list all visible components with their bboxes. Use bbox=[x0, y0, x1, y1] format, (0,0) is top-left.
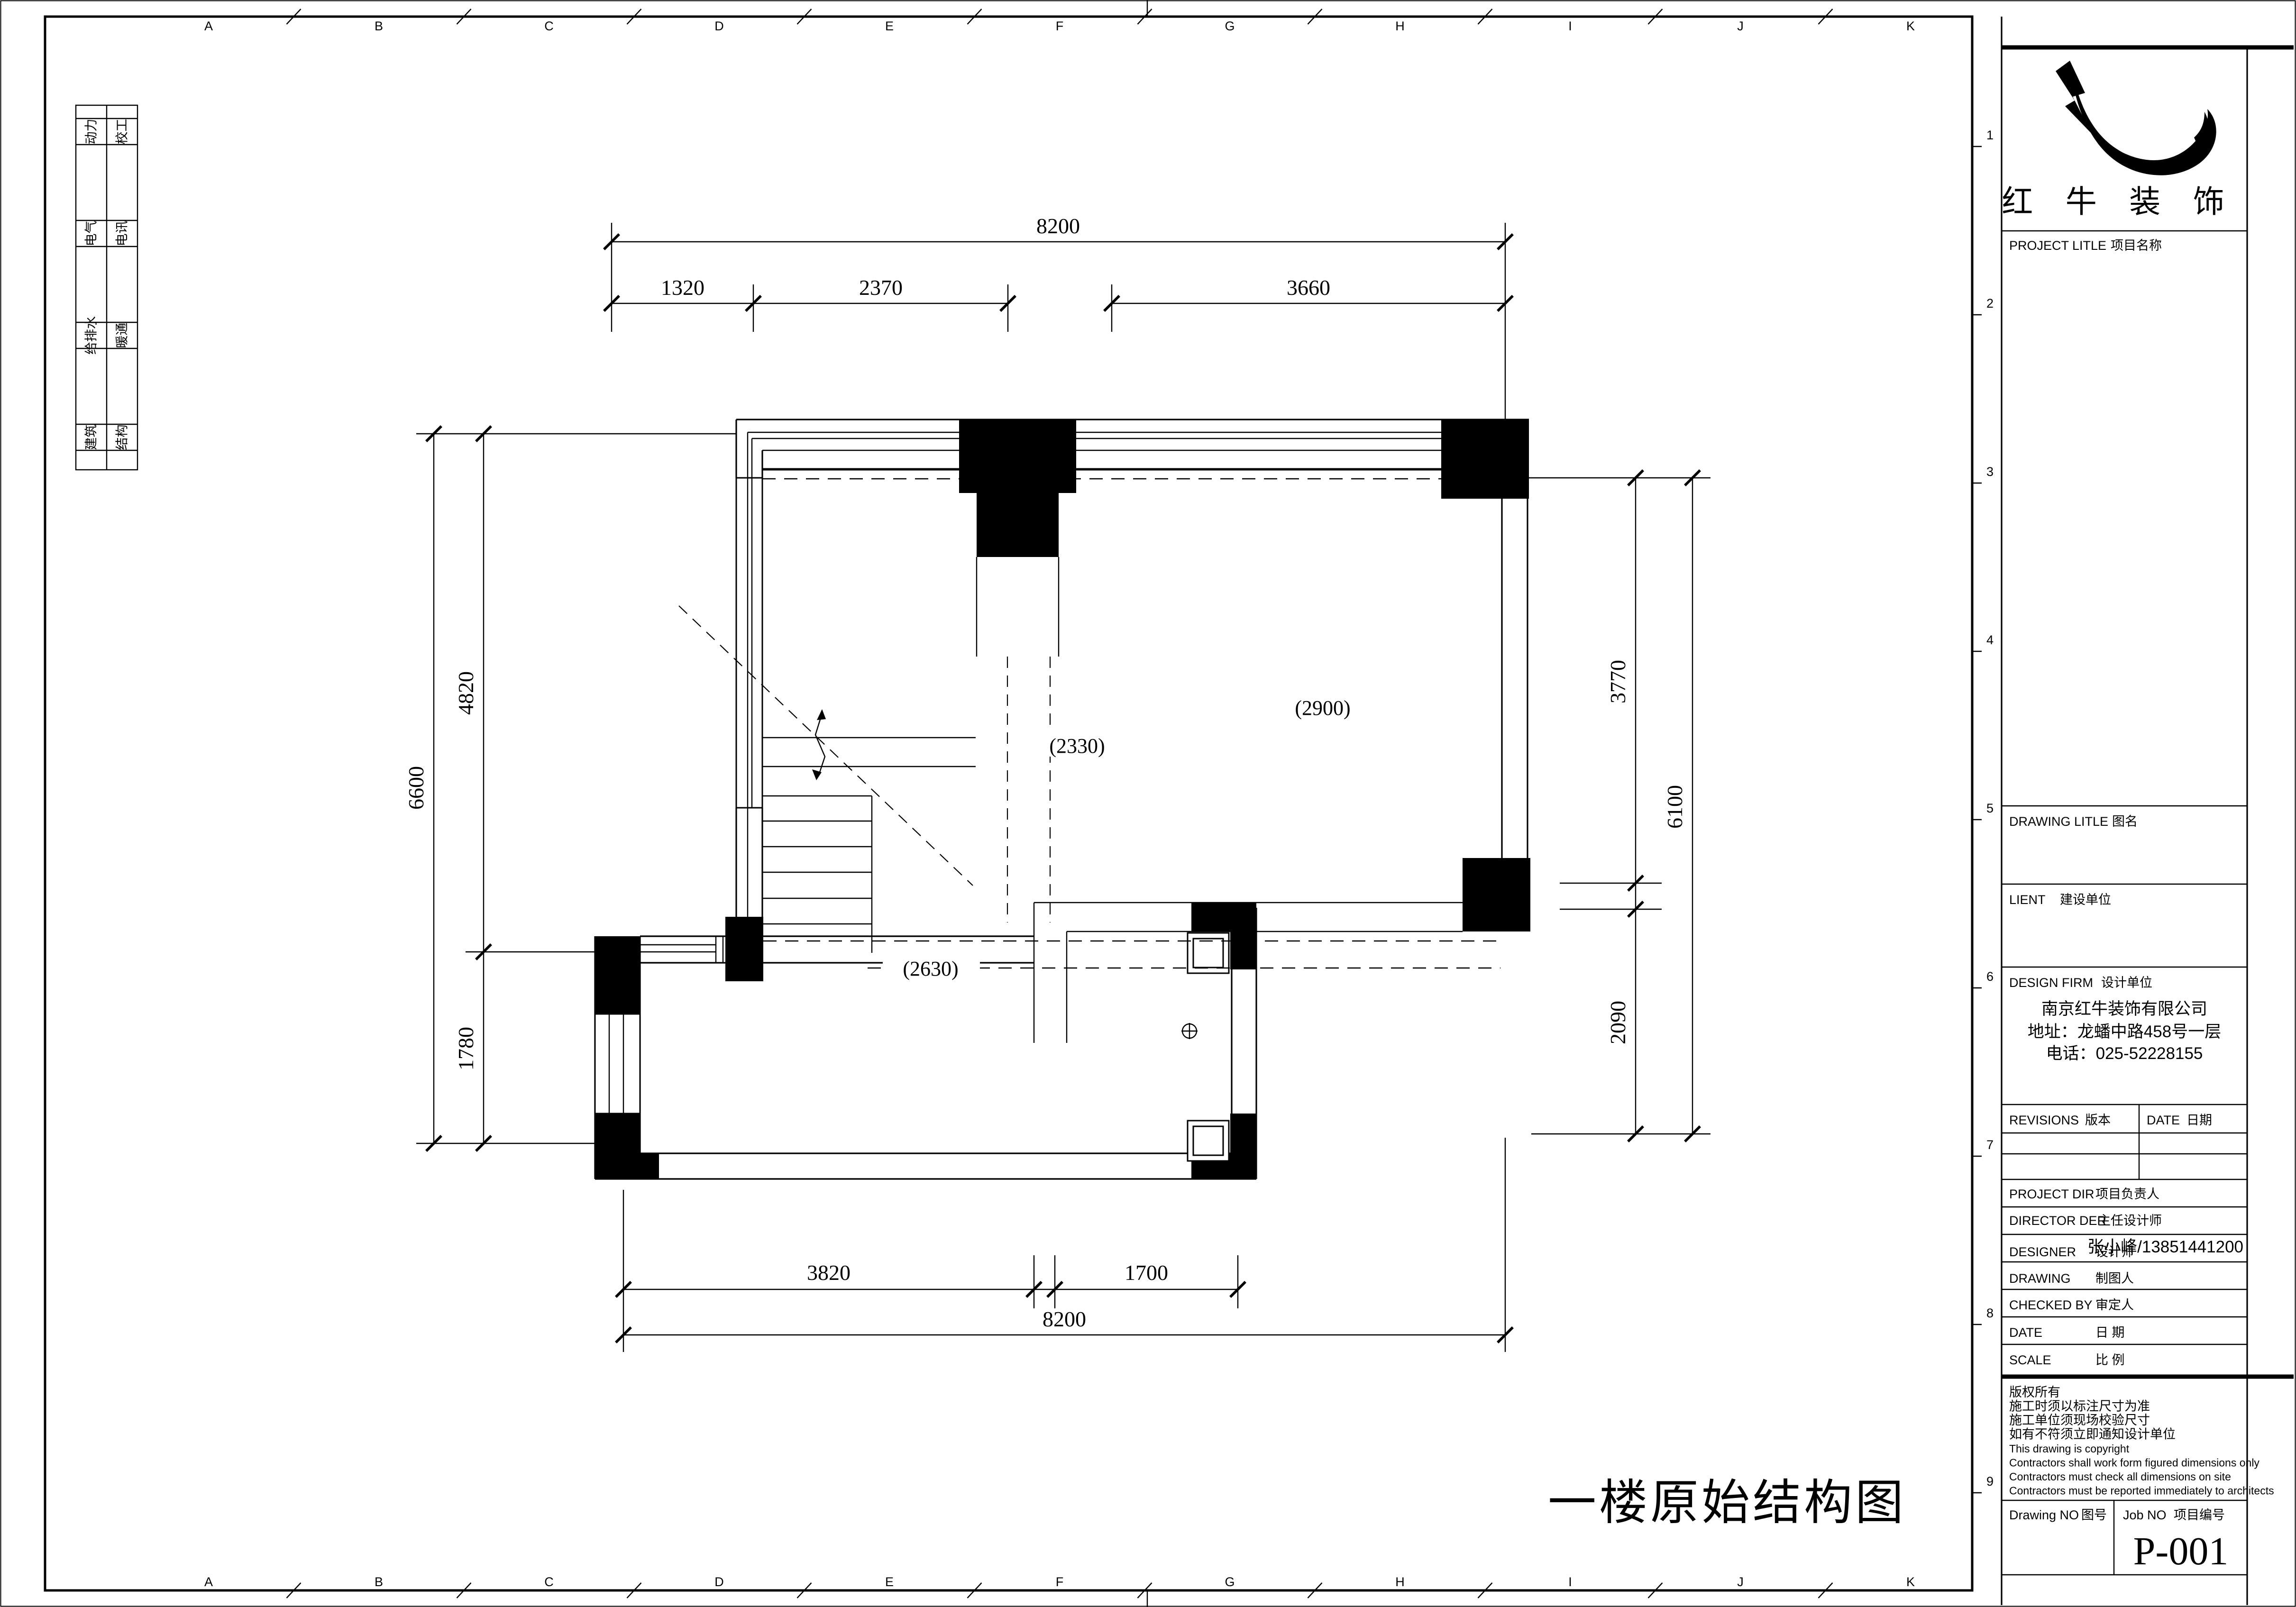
svg-text:审定人: 审定人 bbox=[2095, 1298, 2134, 1312]
discipline-label: 结构 bbox=[115, 425, 129, 450]
svg-text:设计师: 设计师 bbox=[2095, 1245, 2134, 1259]
grid-letter: B bbox=[375, 19, 383, 33]
grid-letter: G bbox=[1225, 1575, 1235, 1589]
window-symbol bbox=[736, 478, 762, 808]
grid-letter: F bbox=[1056, 1575, 1064, 1589]
grid-row-number: 4 bbox=[1986, 633, 1994, 647]
grid-row-number: 7 bbox=[1986, 1138, 1994, 1152]
dim-right-total: 6100 bbox=[1663, 785, 1687, 829]
revisions-label: REVISIONS bbox=[2009, 1113, 2079, 1127]
dim: 3820 bbox=[807, 1260, 851, 1285]
column bbox=[595, 1153, 659, 1179]
grid-letter: J bbox=[1737, 1575, 1744, 1589]
grid-row-number: 9 bbox=[1986, 1474, 1994, 1488]
client-label: LIENT bbox=[2009, 893, 2046, 907]
grid-letter: J bbox=[1737, 19, 1744, 33]
column bbox=[595, 936, 640, 1014]
discipline-label: 电气 bbox=[84, 221, 99, 247]
grid-letter: B bbox=[375, 1575, 383, 1589]
window-symbol bbox=[595, 1014, 640, 1114]
design-firm-label: DESIGN FIRM bbox=[2009, 976, 2093, 990]
copyright-line: Contractors shall work form figured dime… bbox=[2009, 1457, 2259, 1469]
grid-letter: G bbox=[1225, 19, 1235, 33]
dim-left-total: 6600 bbox=[404, 766, 428, 810]
grid-letter: H bbox=[1395, 19, 1405, 33]
drawing-title: 一楼原始结构图 bbox=[1548, 1477, 1906, 1530]
date-col-label: DATE bbox=[2147, 1113, 2180, 1127]
company-name: 红 牛 装 饰 bbox=[2002, 185, 2237, 219]
grid-letter: C bbox=[544, 19, 554, 33]
svg-text:图名: 图名 bbox=[2112, 814, 2138, 829]
column bbox=[725, 917, 763, 981]
copyright-line: 如有不符须立即通知设计单位 bbox=[2009, 1427, 2176, 1442]
copyright-line: Contractors must check all dimensions on… bbox=[2009, 1470, 2231, 1483]
room-label: (2630) bbox=[903, 957, 958, 980]
project-title-label: PROJECT LITLE bbox=[2009, 238, 2106, 253]
grid-row-number: 1 bbox=[1986, 128, 1994, 142]
copyright-line: 施工时须以标注尺寸为准 bbox=[2009, 1399, 2150, 1414]
drawing-no-label: Drawing NO bbox=[2009, 1508, 2079, 1522]
svg-text:主任设计师: 主任设计师 bbox=[2098, 1214, 2162, 1228]
column bbox=[959, 420, 1076, 493]
svg-text:制图人: 制图人 bbox=[2095, 1271, 2134, 1286]
grid-letter: C bbox=[544, 1575, 554, 1589]
designer-label: DESIGNER bbox=[2009, 1245, 2076, 1259]
job-no-value: P-001 bbox=[2133, 1529, 2229, 1573]
grid-letter: D bbox=[714, 1575, 724, 1589]
dim: 4820 bbox=[454, 671, 478, 715]
svg-text:图号: 图号 bbox=[2081, 1508, 2107, 1522]
dim: 3660 bbox=[1287, 275, 1330, 300]
firm-address: 地址：龙蟠中路458号一层 bbox=[2028, 1023, 2221, 1041]
dim: 2090 bbox=[1606, 1001, 1630, 1044]
column bbox=[1441, 420, 1529, 499]
grid-letter: A bbox=[204, 19, 213, 33]
grid-letter: E bbox=[885, 19, 894, 33]
discipline-label: 暖通 bbox=[115, 323, 129, 348]
column-stem bbox=[977, 493, 1059, 557]
column bbox=[1230, 908, 1256, 969]
dim-bottom-total: 8200 bbox=[1043, 1307, 1086, 1331]
director-label: DIRECTOR DER bbox=[2009, 1214, 2106, 1228]
grid-letter: A bbox=[204, 1575, 213, 1589]
drawing-title-label: DRAWING LITLE bbox=[2009, 814, 2108, 829]
svg-text:设计单位: 设计单位 bbox=[2101, 976, 2152, 990]
job-no-label: Job NO bbox=[2123, 1508, 2167, 1522]
discipline-label: 校工 bbox=[115, 119, 129, 145]
grid-row-number: 3 bbox=[1986, 465, 1994, 479]
architectural-drawing-sheet: 动力校工电气电讯给排水暖通建筑结构 AABBCCDDEEFFGGHHIIJJKK… bbox=[0, 0, 2296, 1607]
grid-letter: F bbox=[1056, 19, 1064, 33]
scale-row-label: SCALE bbox=[2009, 1353, 2051, 1367]
svg-text:项目名称: 项目名称 bbox=[2111, 238, 2162, 253]
copyright-line: Contractors must be reported immediately… bbox=[2009, 1485, 2274, 1497]
copyright-line: This drawing is copyright bbox=[2009, 1443, 2130, 1455]
grid-letter: I bbox=[1568, 19, 1572, 33]
discipline-label: 建筑 bbox=[84, 425, 99, 450]
date-row-label: DATE bbox=[2009, 1325, 2042, 1340]
column bbox=[1230, 1114, 1256, 1154]
grid-row-number: 2 bbox=[1986, 296, 1994, 310]
checked-by-label: CHECKED BY bbox=[2009, 1298, 2093, 1312]
dim: 1700 bbox=[1125, 1260, 1168, 1285]
dim: 2370 bbox=[859, 275, 903, 300]
dim: 1320 bbox=[661, 275, 704, 300]
discipline-label: 电讯 bbox=[115, 221, 129, 247]
svg-text:版本: 版本 bbox=[2085, 1113, 2111, 1127]
discipline-label: 给排水 bbox=[84, 316, 99, 355]
svg-text:日 期: 日 期 bbox=[2095, 1325, 2125, 1340]
svg-text:建设单位: 建设单位 bbox=[2060, 893, 2111, 907]
grid-letter: E bbox=[885, 1575, 894, 1589]
project-dir-label: PROJECT DIR bbox=[2009, 1187, 2095, 1201]
column bbox=[1463, 858, 1530, 931]
svg-text:比 例: 比 例 bbox=[2095, 1353, 2125, 1367]
grid-letter: H bbox=[1395, 1575, 1405, 1589]
grid-letter: K bbox=[1906, 1575, 1915, 1589]
copyright-line: 版权所有 bbox=[2009, 1385, 2060, 1399]
svg-text:日期: 日期 bbox=[2186, 1113, 2212, 1127]
drawing-by-label: DRAWING bbox=[2009, 1271, 2071, 1286]
grid-row-number: 8 bbox=[1986, 1306, 1994, 1320]
firm-phone: 电话：025-52228155 bbox=[2046, 1044, 2203, 1063]
discipline-label: 动力 bbox=[84, 119, 99, 145]
dim-top-total: 8200 bbox=[1036, 214, 1080, 238]
svg-text:项目编号: 项目编号 bbox=[2174, 1508, 2225, 1522]
svg-text:项目负责人: 项目负责人 bbox=[2095, 1187, 2159, 1201]
room-label: (2900) bbox=[1295, 696, 1350, 720]
dim: 3770 bbox=[1606, 660, 1630, 703]
room-label: (2330) bbox=[1049, 734, 1105, 758]
grid-letter: D bbox=[714, 19, 724, 33]
firm-name: 南京红牛装饰有限公司 bbox=[2041, 1000, 2207, 1018]
grid-letter: K bbox=[1906, 19, 1915, 33]
grid-letter: I bbox=[1568, 1575, 1572, 1589]
dim: 1780 bbox=[454, 1027, 478, 1070]
grid-row-number: 5 bbox=[1986, 801, 1994, 815]
grid-row-number: 6 bbox=[1986, 969, 1994, 984]
copyright-line: 施工单位须现场校验尺寸 bbox=[2009, 1413, 2150, 1427]
